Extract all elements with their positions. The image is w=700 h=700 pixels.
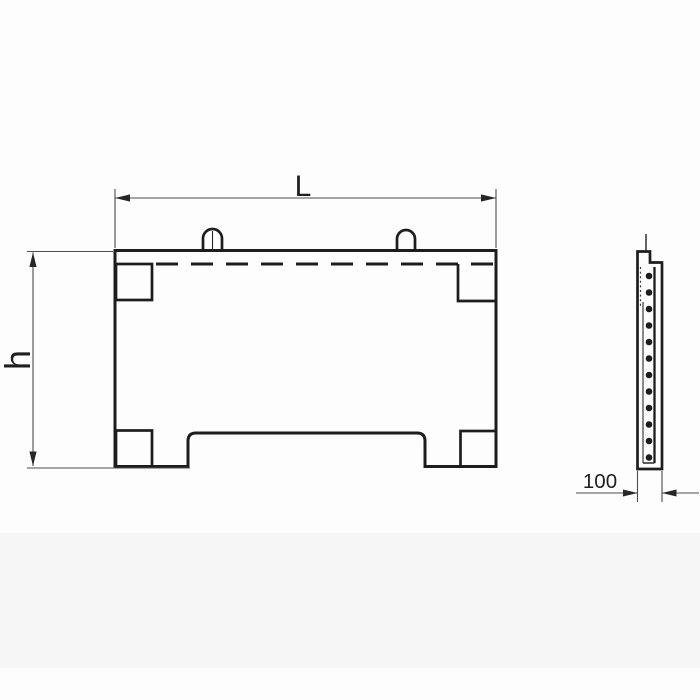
drawing-canvas: L h <box>0 0 700 700</box>
rebar-dot <box>646 289 653 296</box>
rebar-dot <box>646 388 653 395</box>
arrowhead-top <box>29 253 36 268</box>
corner-plate-bottom-left <box>116 431 152 467</box>
dimension-label-thickness: 100 <box>583 470 617 493</box>
panel-outline <box>115 251 496 467</box>
side-view <box>638 234 663 469</box>
arrowhead-left <box>115 194 130 201</box>
rebar-dot <box>646 438 653 445</box>
rebar-dot <box>646 405 653 412</box>
arrowhead-right <box>481 194 496 201</box>
engineering-drawing: L h <box>0 0 700 700</box>
lifting-loop-right-arch <box>397 230 415 251</box>
front-view <box>115 229 496 467</box>
dimension-label-height: h <box>0 350 38 370</box>
dimension-label-length: L <box>295 170 312 203</box>
rebar-dot <box>646 339 653 346</box>
arrowhead-left <box>623 490 638 497</box>
rebar-dot <box>646 273 653 280</box>
dimension-height: h <box>0 252 190 469</box>
dimension-length: L <box>115 170 496 248</box>
rebar-dot <box>646 355 653 362</box>
rebar-dot <box>646 322 653 329</box>
rebar-dots <box>646 273 653 461</box>
rebar-dot <box>646 306 653 313</box>
rebar-dot <box>646 372 653 379</box>
dimension-thickness: 100 <box>576 470 699 502</box>
rebar-dot <box>646 454 653 461</box>
rebar-dot <box>646 421 653 428</box>
corner-plate-top-right <box>458 264 496 301</box>
lifting-loop-right <box>397 230 415 251</box>
corner-plate-bottom-right <box>461 431 497 467</box>
corner-plate-top-left <box>116 264 152 300</box>
lifting-loop-left <box>203 229 222 251</box>
arrowhead-right <box>662 490 677 497</box>
arrowhead-bottom <box>29 452 36 467</box>
